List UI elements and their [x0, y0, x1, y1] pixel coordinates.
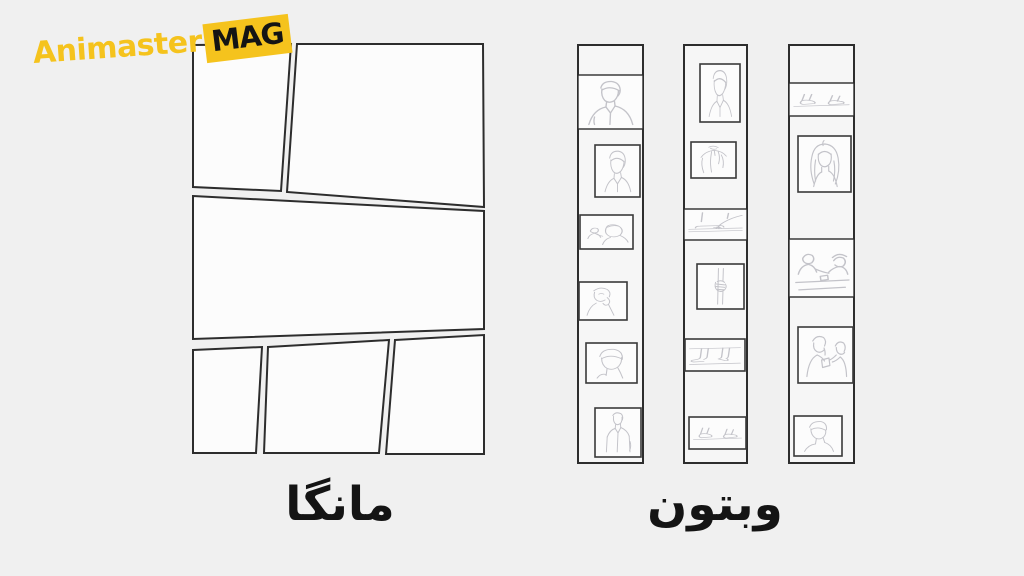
webtoon-strip-2: [684, 45, 747, 463]
label-manga: مانگا: [190, 477, 490, 532]
panel-man-portrait-2: [700, 64, 740, 122]
manga-panel-bottom-right: [386, 335, 484, 454]
manga-panel-top-right: [287, 44, 484, 207]
panel-man-bust: [578, 75, 643, 129]
panel-woman-portrait: [798, 136, 851, 192]
manga-panel-bottom-left: [193, 347, 262, 453]
manga-panel-top-left: [193, 44, 291, 191]
comparison-infographic: Animaster MAG: [0, 0, 1024, 576]
panel-couple-at-table: [789, 239, 854, 297]
panel-person-leaning: [579, 282, 627, 320]
brand-name: Animaster: [32, 24, 203, 71]
manga-page-layout: [185, 35, 490, 465]
panel-man-standing: [595, 408, 641, 457]
webtoon-strip-1: [578, 45, 643, 463]
panel-feet-shoes: [689, 417, 746, 449]
panel-man-closeup: [794, 416, 842, 456]
webtoon-strip-3: [789, 45, 854, 463]
panel-person-closeup: [586, 343, 637, 383]
webtoon-strips: [573, 40, 858, 470]
panel-hand-on-table: [684, 209, 747, 240]
panel-two-people-scene: [580, 215, 633, 249]
panel-legs-seated: [685, 339, 745, 371]
panel-man-portrait: [595, 145, 640, 197]
manga-panel-middle: [193, 196, 484, 339]
panel-walking-feet: [789, 83, 854, 116]
panel-shoulder-torso: [691, 142, 736, 178]
label-webtoon: وبتون: [565, 477, 865, 532]
brand-badge: MAG: [203, 14, 293, 63]
panel-hand-gripping: [697, 264, 744, 309]
manga-panel-bottom-middle: [264, 340, 389, 453]
panel-couple-talking: [798, 327, 853, 383]
